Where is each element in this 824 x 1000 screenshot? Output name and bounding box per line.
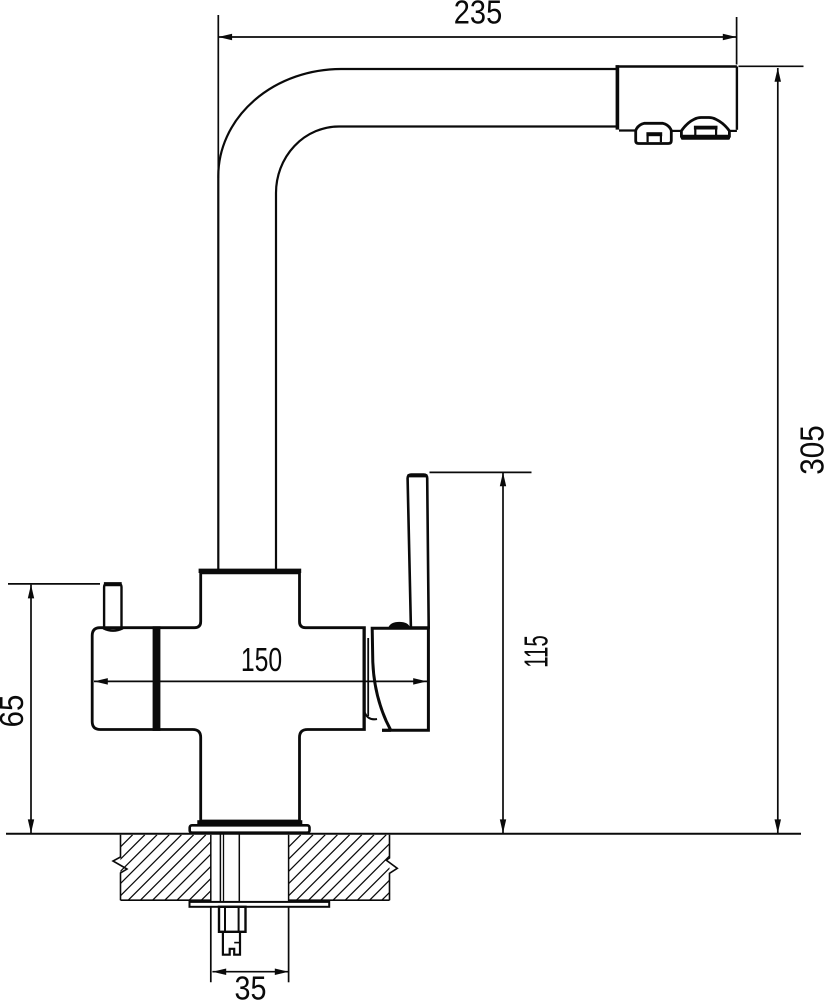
svg-text:305: 305: [794, 425, 824, 475]
svg-text:35: 35: [235, 970, 267, 1000]
svg-text:150: 150: [241, 643, 282, 679]
svg-text:235: 235: [454, 0, 502, 31]
svg-text:65: 65: [0, 695, 31, 728]
svg-text:115: 115: [517, 635, 554, 668]
